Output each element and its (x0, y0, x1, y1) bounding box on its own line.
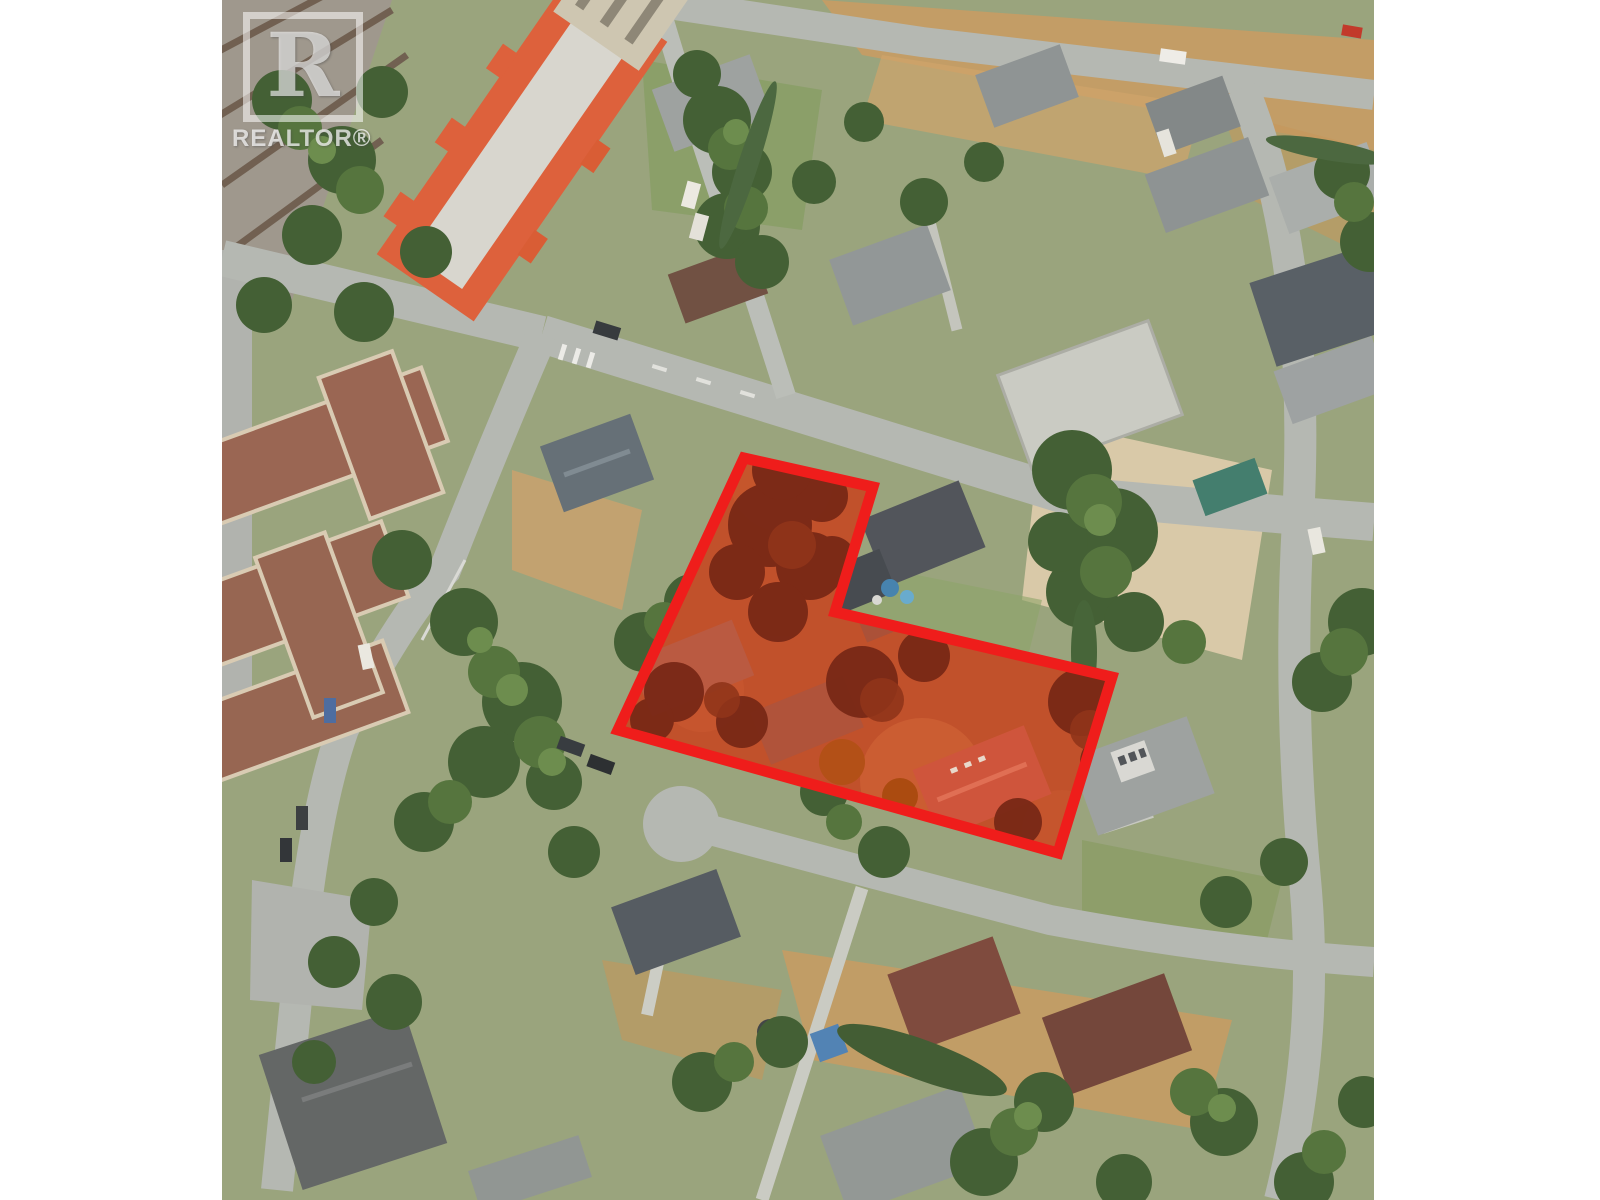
listing-photo-page: R REALTOR® (0, 0, 1600, 1200)
realtor-logo-r: R (266, 21, 339, 109)
aerial-scene (222, 0, 1374, 1200)
realtor-watermark: R REALTOR® (232, 12, 382, 153)
realtor-logo-box: R (243, 12, 363, 122)
photo-color-grade (222, 0, 1374, 1200)
realtor-brand-text: REALTOR® (232, 125, 382, 153)
aerial-photo: R REALTOR® (222, 0, 1374, 1200)
